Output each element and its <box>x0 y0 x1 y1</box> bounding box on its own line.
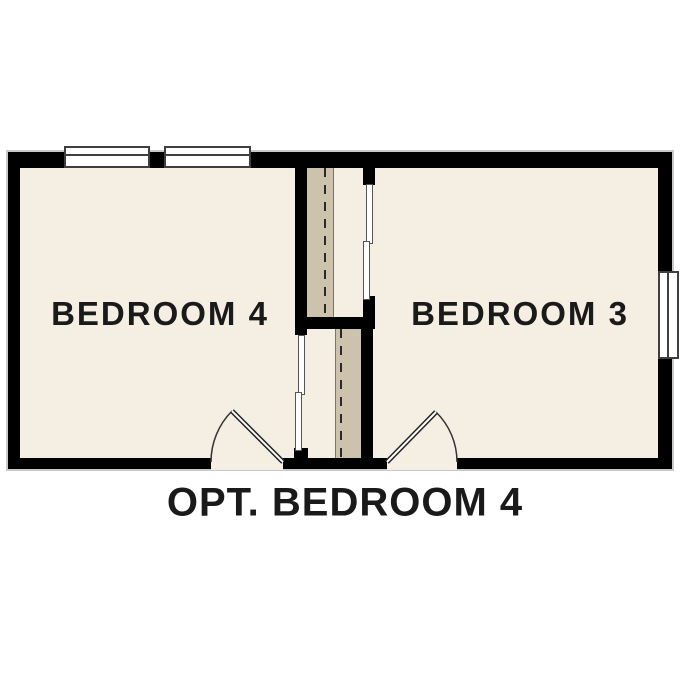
interior-wall-right-mid <box>363 296 375 329</box>
window-pane-line <box>166 154 249 156</box>
window-pane-line <box>667 273 669 357</box>
stair-dashed-line-lower <box>340 329 342 458</box>
interior-wall-right-lower <box>361 329 373 458</box>
stair-dashed-line-upper <box>324 168 326 317</box>
door-opening-bedroom4 <box>211 458 283 470</box>
stair-rail-lower-b <box>295 392 302 451</box>
window-symbol-top-left <box>64 146 150 168</box>
door-opening-bedroom3 <box>387 458 457 470</box>
interior-wall-left <box>295 168 307 335</box>
stair-rail-upper-b <box>363 241 370 300</box>
window-symbol-right-wall <box>658 271 679 359</box>
interior-wall-landing <box>295 317 373 329</box>
room-label-bedroom3: BEDROOM 3 <box>411 295 629 333</box>
stair-shaft-upper <box>307 168 334 317</box>
stair-rail-upper-a <box>366 184 373 244</box>
floor-plan: BEDROOM 4 BEDROOM 3 OPT. BEDROOM 4 <box>0 0 687 687</box>
interior-wall-stub-top <box>363 168 375 185</box>
window-symbol-top-right <box>164 146 251 168</box>
room-label-bedroom4: BEDROOM 4 <box>51 295 269 333</box>
plan-caption: OPT. BEDROOM 4 <box>167 481 523 526</box>
window-pane-line <box>66 154 148 156</box>
stair-rail-lower-a <box>298 335 305 395</box>
